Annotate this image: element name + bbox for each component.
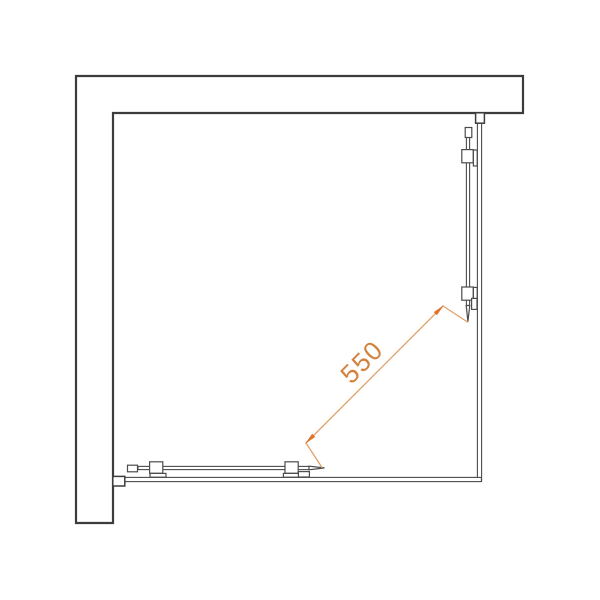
bottom-door-guide-block: [298, 472, 309, 477]
right-door-guide-block: [472, 298, 477, 309]
fixed-panels: [125, 123, 482, 482]
right-door-roller-top: [462, 150, 473, 163]
right-door-roller-foot-top: [473, 150, 477, 166]
diagram-canvas: 550: [0, 0, 600, 600]
bottom-door-roller-foot-right: [283, 473, 299, 477]
shower-enclosure-drawing: 550: [0, 0, 600, 600]
dimension-line: [306, 306, 443, 443]
wall-outline: [76, 76, 523, 523]
right-fixed-panel: [477, 123, 481, 481]
right-door-end-cap: [465, 128, 472, 138]
bottom-sliding-door: [128, 462, 325, 477]
bottom-panel-wall-profile: [113, 476, 125, 486]
bottom-fixed-panel: [125, 477, 482, 481]
bottom-door-glass: [138, 466, 309, 469]
bottom-door-roller-right: [285, 462, 298, 473]
right-door-tip: [466, 306, 470, 322]
bottom-door-roller-left: [150, 462, 163, 473]
right-panel-wall-profile: [476, 113, 485, 123]
dimension-550: 550: [305, 305, 467, 467]
bottom-door-roller-foot-left: [150, 473, 166, 477]
dimension-label: 550: [334, 334, 389, 389]
bottom-door-end-cap: [128, 465, 138, 472]
dimension-leader-bottom: [306, 443, 322, 468]
dimension-leader-right: [443, 306, 468, 322]
right-sliding-door: [462, 128, 477, 322]
